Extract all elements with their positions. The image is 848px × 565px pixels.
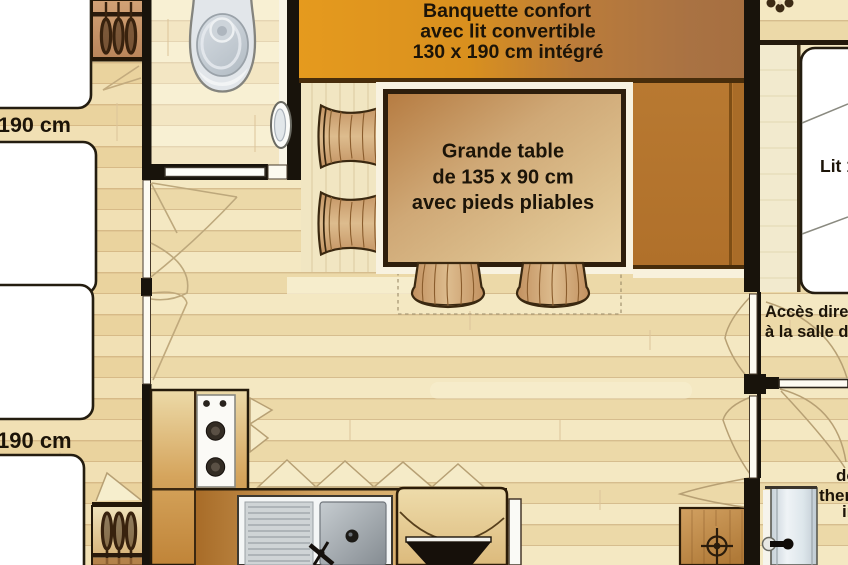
svg-text:Lit 140: Lit 140: [820, 156, 848, 176]
svg-text:avec pieds pliables: avec pieds pliables: [412, 192, 594, 214]
svg-text:Banquette confort: Banquette confort: [423, 0, 591, 22]
svg-text:douche: douche: [836, 466, 848, 485]
svg-text:190 cm: 190 cm: [0, 428, 72, 453]
svg-text:190 cm: 190 cm: [0, 113, 71, 137]
svg-text:avec lit convertible: avec lit convertible: [420, 21, 596, 43]
svg-text:130 x 190 cm intégré: 130 x 190 cm intégré: [413, 41, 604, 63]
svg-text:Grande table: Grande table: [442, 141, 564, 163]
svg-text:de 135 x 90 cm: de 135 x 90 cm: [432, 167, 573, 189]
svg-text:Accès direct: Accès direct: [765, 303, 848, 321]
svg-text:intégrée: intégrée: [842, 502, 848, 521]
svg-text:à la salle de bain: à la salle de bain: [765, 323, 848, 341]
